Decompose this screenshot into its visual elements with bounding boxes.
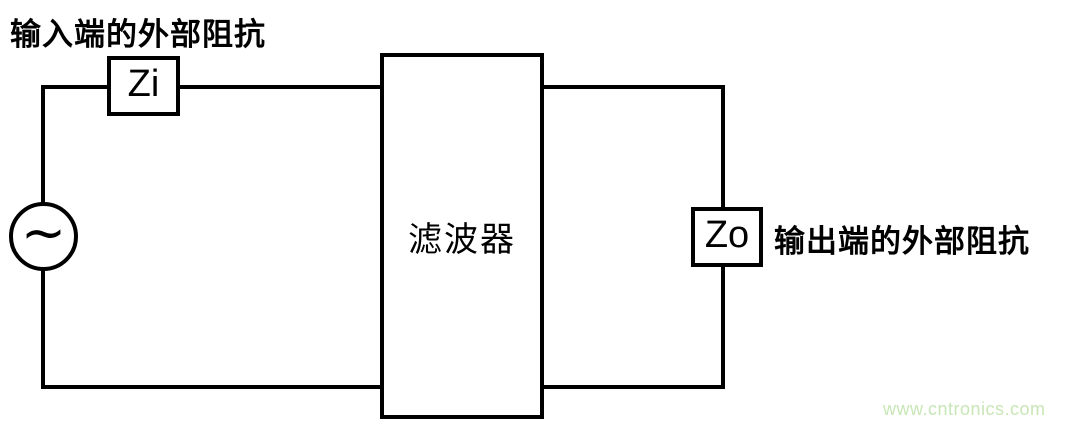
zi-box: Zi bbox=[107, 56, 180, 116]
wire-bottom-right bbox=[541, 385, 725, 389]
filter-box: 滤波器 bbox=[380, 53, 544, 419]
zi-label: Zi bbox=[128, 65, 160, 107]
input-impedance-label: 输入端的外部阻抗 bbox=[10, 9, 266, 54]
circuit-diagram: ∼ Zi 滤波器 Zo 输入端的外部阻抗 输出端的外部阻抗 www.cntron… bbox=[0, 0, 1075, 430]
ac-source: ∼ bbox=[9, 202, 78, 271]
wire-top-left bbox=[41, 85, 382, 89]
output-impedance-label: 输出端的外部阻抗 bbox=[774, 216, 1030, 261]
wire-top-right bbox=[541, 85, 725, 89]
zo-label: Zo bbox=[705, 216, 749, 258]
watermark-text: www.cntronics.com bbox=[883, 399, 1046, 420]
wire-bottom-left bbox=[41, 385, 382, 389]
filter-label: 滤波器 bbox=[408, 212, 516, 261]
zo-box: Zo bbox=[691, 207, 763, 267]
ac-sine-icon: ∼ bbox=[21, 206, 66, 260]
